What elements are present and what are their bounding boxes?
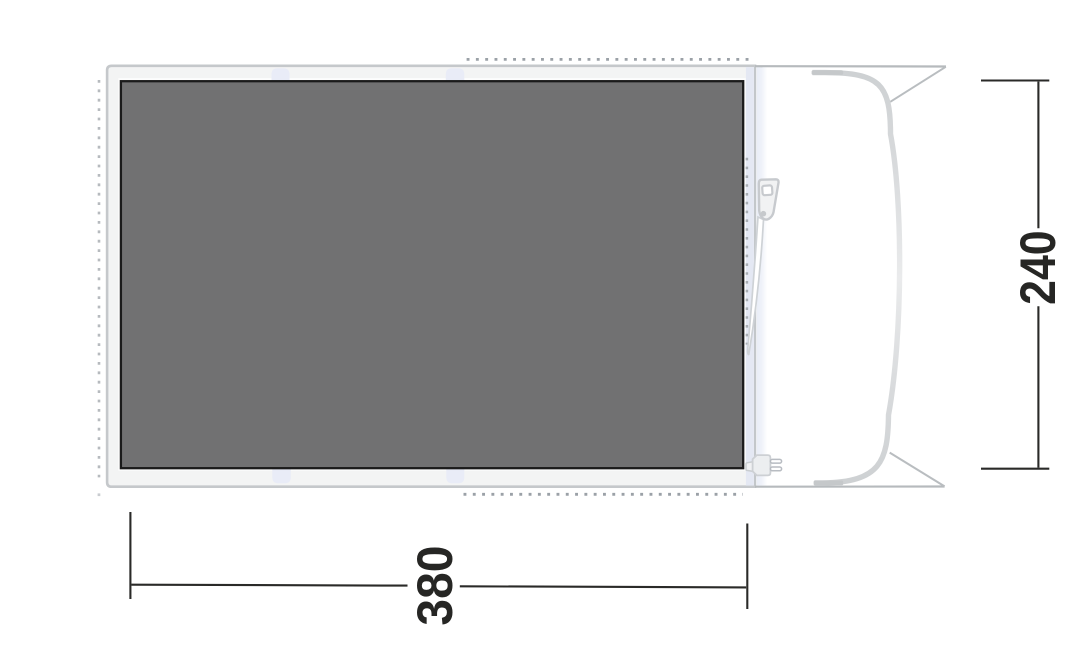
svg-text:240: 240: [1009, 230, 1066, 305]
svg-text:380: 380: [406, 546, 463, 626]
